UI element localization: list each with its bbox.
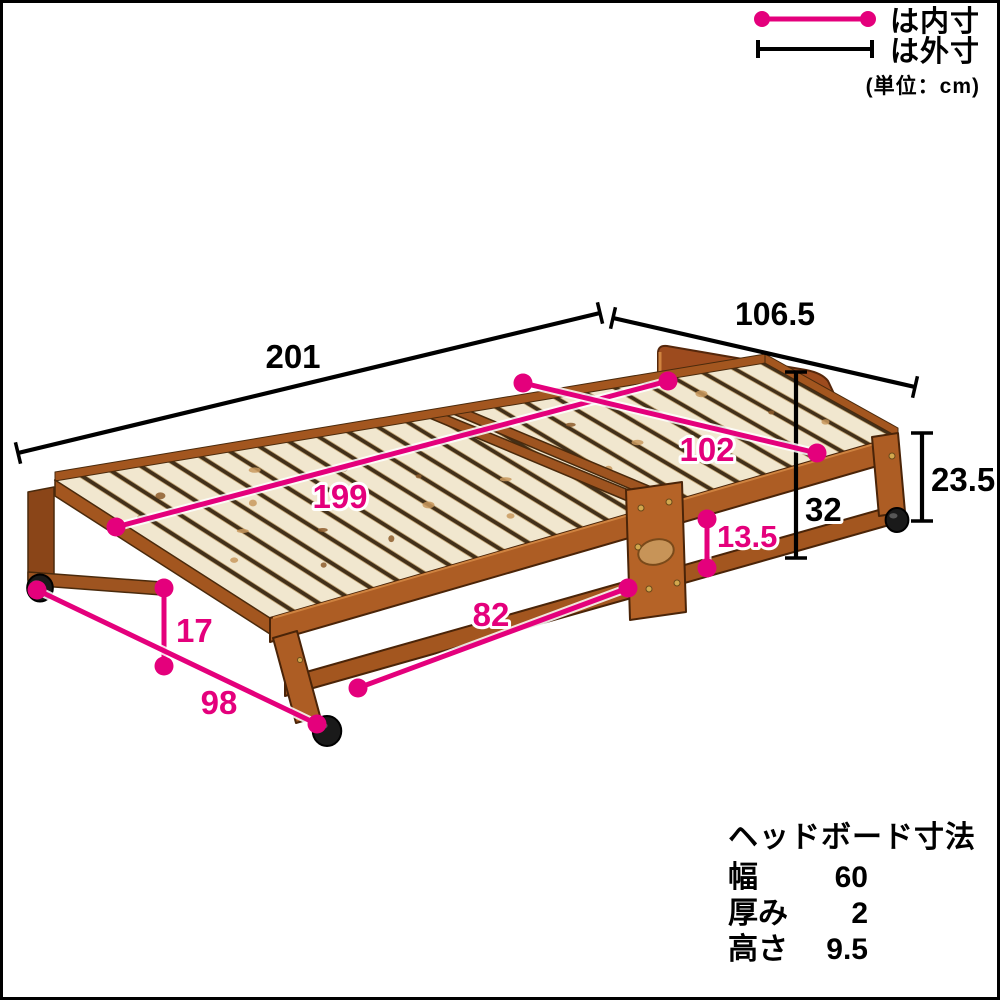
joint-plate	[626, 482, 686, 620]
dimension-endpoint-dot	[308, 715, 327, 734]
dimension-label: 98	[201, 684, 238, 721]
screw-icon	[646, 586, 652, 592]
dimension-endpoint-dot	[107, 518, 126, 537]
dimension-endpoint-dot	[659, 372, 678, 391]
dimension-label: 32	[805, 491, 842, 528]
dimension-label: 199	[312, 478, 367, 515]
wood-knot	[249, 467, 261, 472]
screw-icon	[638, 505, 644, 511]
screw-icon	[298, 658, 303, 663]
headboard-spec-row-width: 幅 60	[728, 860, 976, 896]
wood-knot	[695, 390, 707, 397]
dimension-endpoint-dot	[698, 559, 717, 578]
dimension-label: 23.5	[931, 461, 995, 498]
caster-head-end-icon	[886, 508, 909, 532]
head-end-post	[872, 433, 905, 516]
headboard-spec: ヘッドボード寸法 幅 60 厚み 2 高さ 9.5	[728, 812, 976, 968]
wood-knot	[321, 562, 327, 567]
dimension-label: 201	[265, 338, 320, 375]
wood-knot	[821, 419, 829, 424]
dimension-endpoint-dot	[349, 679, 368, 698]
dimension-label: 82	[473, 596, 510, 633]
dimension-endpoint-dot	[808, 444, 827, 463]
headboard-spec-title: ヘッドボード寸法	[728, 812, 976, 856]
dimension-end-tick	[913, 376, 918, 397]
wood-knot	[230, 557, 238, 562]
screw-icon	[674, 580, 680, 586]
dimension-label: 102	[679, 431, 734, 468]
caster-wheel	[886, 508, 909, 532]
dimension-endpoint-dot	[28, 581, 47, 600]
caster-highlight	[889, 513, 897, 518]
wood-knot	[155, 492, 165, 499]
legend-outer-label: は外寸	[890, 28, 980, 70]
dimension-endpoint-dot	[698, 510, 717, 529]
dimension-endpoint-dot	[155, 657, 174, 676]
legend-unit-note: (単位：cm)	[752, 70, 980, 100]
dimension-end-tick	[611, 307, 616, 328]
dimension-label: 106.5	[735, 296, 815, 332]
wood-knot	[388, 535, 394, 542]
wood-knot	[237, 529, 249, 533]
screw-icon	[635, 544, 641, 550]
wood-knot	[507, 513, 515, 518]
legend-outer-row: は外寸	[752, 34, 980, 64]
legend: は内寸 は外寸 (単位：cm)	[752, 4, 980, 100]
dimension-endpoint-dot	[619, 579, 638, 598]
dimension-label: 13.5	[717, 519, 777, 554]
wood-knot	[768, 411, 774, 415]
dimension-end-frame-height: 23.5	[911, 433, 995, 521]
inner-dimension-swatch-icon	[752, 8, 878, 30]
wood-knot	[500, 477, 512, 481]
wood-knot	[416, 474, 422, 478]
screw-icon	[666, 499, 672, 505]
wood-knot	[566, 423, 576, 427]
headboard-spec-row-height: 高さ 9.5	[728, 932, 976, 968]
foot-end-panel	[28, 487, 54, 580]
dimension-endpoint-dot	[514, 374, 533, 393]
wood-knot	[249, 500, 257, 507]
wood-knot	[631, 440, 643, 445]
screw-icon	[889, 453, 895, 459]
outer-dimension-swatch-icon	[752, 38, 878, 60]
dimension-endpoint-dot	[155, 579, 174, 598]
wood-knot	[422, 502, 434, 509]
headboard-spec-row-thickness: 厚み 2	[728, 896, 976, 932]
wood-knot	[318, 528, 328, 532]
dimension-label: 17	[176, 612, 213, 649]
